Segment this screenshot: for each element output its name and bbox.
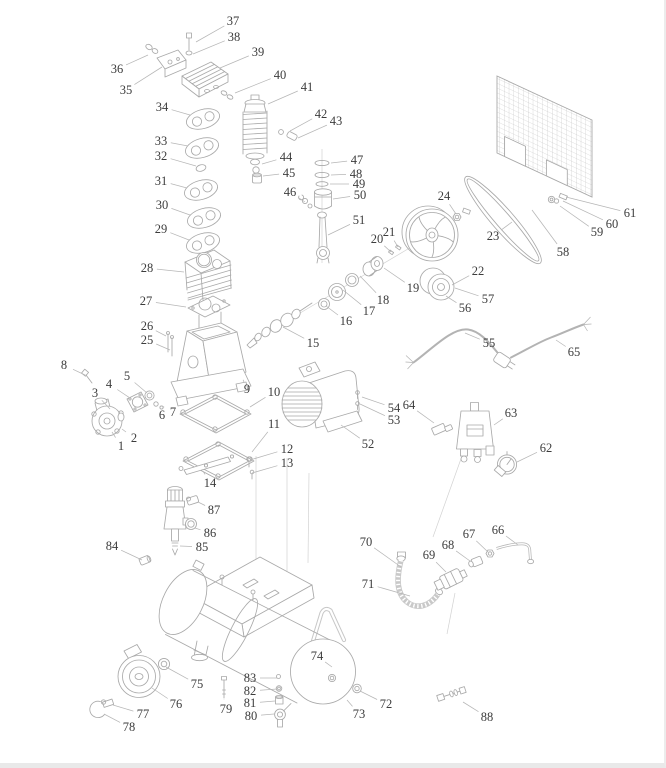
part-label-62: 62 xyxy=(540,441,553,455)
base-gaskets-group xyxy=(179,395,254,480)
part-leader-32 xyxy=(171,159,196,166)
power-plug xyxy=(493,351,517,372)
gasket-32 xyxy=(195,164,206,173)
bolt-79 xyxy=(222,677,227,699)
part-label-17: 17 xyxy=(363,304,376,318)
part-label-30: 30 xyxy=(156,198,169,212)
part-label-78: 78 xyxy=(123,720,136,734)
part-label-70: 70 xyxy=(360,535,373,549)
part-label-29: 29 xyxy=(155,222,168,236)
crankcase xyxy=(171,312,251,406)
part-label-23: 23 xyxy=(487,229,500,243)
part-label-16: 16 xyxy=(340,314,353,328)
part-leader-63 xyxy=(494,419,503,425)
part-leader-54 xyxy=(362,397,385,405)
part-leader-80 xyxy=(261,714,274,715)
part-leader-76 xyxy=(152,688,168,699)
part-leader-88 xyxy=(463,702,479,712)
regulator-group xyxy=(139,487,199,566)
gauge-62 xyxy=(494,452,516,477)
seal-18 xyxy=(346,274,359,287)
part-leader-84 xyxy=(121,550,142,560)
part-label-26: 26 xyxy=(141,319,154,333)
part-label-72: 72 xyxy=(380,697,393,711)
part-leader-71 xyxy=(378,587,410,596)
gasket-10 xyxy=(180,395,251,433)
part-label-34: 34 xyxy=(156,100,169,114)
plate-33 xyxy=(183,134,221,162)
part-leader-41 xyxy=(268,91,298,104)
part-leader-35 xyxy=(134,67,162,85)
part-leader-48 xyxy=(331,174,346,175)
bung-72-73 xyxy=(353,684,362,693)
drive-group xyxy=(402,170,549,300)
part-leader-77 xyxy=(113,705,133,711)
part-label-2: 2 xyxy=(131,431,137,445)
part-leader-18 xyxy=(360,276,376,293)
part-label-82: 82 xyxy=(244,684,257,698)
part-leader-57 xyxy=(455,288,479,296)
part-label-20: 20 xyxy=(371,232,384,246)
plug-84 xyxy=(139,555,152,565)
part-leader-40 xyxy=(235,79,271,93)
part-label-42: 42 xyxy=(315,107,328,121)
part-label-83: 83 xyxy=(244,671,257,685)
bolt-36 xyxy=(145,43,159,54)
part-label-86: 86 xyxy=(204,526,217,540)
part-label-74: 74 xyxy=(311,649,324,663)
part-label-28: 28 xyxy=(141,261,154,275)
part-label-56: 56 xyxy=(459,301,472,315)
part-label-52: 52 xyxy=(362,437,375,451)
part-label-44: 44 xyxy=(280,150,293,164)
part-leader-64 xyxy=(417,411,434,423)
drain-valve-80-81-82-83 xyxy=(275,675,291,728)
part-label-50: 50 xyxy=(354,188,367,202)
wheel-76 xyxy=(118,656,160,698)
part-label-65: 65 xyxy=(568,345,581,359)
keys-20-21 xyxy=(389,245,402,255)
part-label-87: 87 xyxy=(208,503,221,517)
part-label-68: 68 xyxy=(442,538,455,552)
part-label-15: 15 xyxy=(307,336,320,350)
part-label-71: 71 xyxy=(362,577,375,591)
plate-31 xyxy=(182,176,220,204)
part-leader-45 xyxy=(263,174,279,176)
part-label-79: 79 xyxy=(220,702,233,716)
part-leader-44 xyxy=(262,160,276,164)
part-leader-75 xyxy=(166,667,188,679)
part-label-1: 1 xyxy=(118,439,124,453)
part-label-73: 73 xyxy=(353,707,366,721)
exploded-parts-diagram: 1234567891011121314151617181920212223242… xyxy=(0,0,666,768)
part-label-9: 9 xyxy=(244,382,250,396)
part-label-32: 32 xyxy=(155,149,168,163)
part-leader-24 xyxy=(450,204,457,214)
part-leader-39 xyxy=(220,56,249,68)
pipe-66 xyxy=(497,544,534,564)
part-leader-87 xyxy=(198,502,205,506)
bolt-88 xyxy=(437,687,466,702)
pump-group xyxy=(82,369,164,436)
part-label-3: 3 xyxy=(92,386,98,400)
part-label-18: 18 xyxy=(377,293,390,307)
part-leader-56 xyxy=(446,296,457,303)
part-label-63: 63 xyxy=(505,406,518,420)
part-leader-30 xyxy=(171,208,190,215)
part-leader-85 xyxy=(180,546,192,547)
bolt-8 xyxy=(82,369,92,383)
part-leader-11 xyxy=(252,432,268,452)
part-leader-37 xyxy=(196,26,224,42)
part-label-38: 38 xyxy=(228,30,241,44)
fitting-68 xyxy=(468,556,483,568)
pressure-switch-63 xyxy=(457,403,495,463)
part-leader-62 xyxy=(517,452,537,462)
part-label-13: 13 xyxy=(281,456,294,470)
fitting-64 xyxy=(431,423,452,435)
part-leader-43 xyxy=(298,125,327,138)
unloader-valve-35 xyxy=(157,50,186,77)
part-label-69: 69 xyxy=(423,548,436,562)
part-label-43: 43 xyxy=(330,114,343,128)
part-leader-4 xyxy=(117,390,130,399)
part-leader-86 xyxy=(195,528,201,530)
part-leader-17 xyxy=(343,290,361,305)
fittings-40 xyxy=(220,90,233,100)
part-label-84: 84 xyxy=(106,539,119,553)
outlet-group xyxy=(397,544,534,606)
part-leader-51 xyxy=(328,224,350,235)
bearing-17 xyxy=(329,284,346,301)
part-label-81: 81 xyxy=(244,696,257,710)
part-label-80: 80 xyxy=(245,709,258,723)
check-valve-69 xyxy=(433,566,468,593)
part-label-11: 11 xyxy=(268,417,280,431)
part-label-46: 46 xyxy=(284,185,297,199)
fitting-87 xyxy=(186,495,199,505)
part-leader-33 xyxy=(171,143,188,146)
part-leader-2 xyxy=(122,429,126,432)
motor-pulley-22-56-57 xyxy=(420,268,454,300)
part-leader-61 xyxy=(566,197,620,211)
part-leader-53 xyxy=(360,404,385,416)
belt-guard-group xyxy=(497,76,592,203)
part-label-47: 47 xyxy=(351,153,364,167)
part-label-41: 41 xyxy=(301,80,314,94)
part-label-36: 36 xyxy=(111,62,124,76)
part-label-5: 5 xyxy=(124,369,130,383)
part-leader-78 xyxy=(104,714,120,722)
motor-52 xyxy=(282,362,362,432)
motor-group xyxy=(282,362,362,432)
part-label-77: 77 xyxy=(137,707,150,721)
part-label-66: 66 xyxy=(492,523,505,537)
part-label-59: 59 xyxy=(591,225,604,239)
part-leader-26 xyxy=(156,331,166,336)
part-label-25: 25 xyxy=(141,333,154,347)
part-leader-16 xyxy=(326,306,338,315)
part-label-45: 45 xyxy=(283,166,296,180)
part-label-35: 35 xyxy=(120,83,133,97)
tank-group xyxy=(90,557,466,727)
part-label-22: 22 xyxy=(472,264,485,278)
hose-70-71 xyxy=(397,552,444,606)
part-label-58: 58 xyxy=(557,245,570,259)
part-leader-68 xyxy=(456,551,470,561)
part-label-33: 33 xyxy=(155,134,168,148)
piston-crank-group xyxy=(247,160,401,348)
pump-body-1-2-3 xyxy=(92,398,124,436)
belt-23 xyxy=(457,170,548,270)
part-leader-19 xyxy=(384,268,405,282)
part-label-8: 8 xyxy=(61,358,67,372)
cylinder-block-28 xyxy=(185,250,232,300)
part-label-10: 10 xyxy=(268,385,281,399)
part-leader-22 xyxy=(452,276,469,285)
belt-guard-mesh-58 xyxy=(497,76,592,197)
part-leader-47 xyxy=(331,161,347,163)
part-leader-31 xyxy=(171,184,187,188)
part-leader-15 xyxy=(283,327,304,338)
part-leader-59 xyxy=(560,206,589,226)
head-gasket-27 xyxy=(188,296,230,317)
part-leader-20 xyxy=(384,246,391,252)
part-label-37: 37 xyxy=(227,14,240,28)
part-leader-58 xyxy=(532,210,557,244)
part-label-53: 53 xyxy=(388,413,401,427)
connecting-rod-51 xyxy=(317,212,330,263)
part-label-75: 75 xyxy=(191,677,204,691)
part-leader-69 xyxy=(436,562,446,572)
part-leader-36 xyxy=(126,55,148,65)
part-leader-23 xyxy=(501,222,512,230)
part-label-67: 67 xyxy=(463,527,476,541)
piston-50 xyxy=(315,189,332,209)
flywheel xyxy=(402,206,458,261)
part-label-19: 19 xyxy=(407,281,420,295)
part-label-12: 12 xyxy=(281,442,294,456)
part-label-6: 6 xyxy=(159,408,165,422)
washer-bolt-24 xyxy=(453,208,470,220)
cylinder-crankcase-group xyxy=(167,250,252,406)
part-label-60: 60 xyxy=(606,217,619,231)
part-leader-38 xyxy=(193,41,225,54)
part-leader-81 xyxy=(260,701,275,702)
valve-plates-group xyxy=(182,105,223,257)
part-leader-65 xyxy=(556,340,566,347)
part-label-21: 21 xyxy=(383,225,396,239)
part-label-40: 40 xyxy=(274,68,287,82)
part-leader-5 xyxy=(135,383,147,394)
part-leader-28 xyxy=(157,269,184,272)
part-label-4: 4 xyxy=(106,377,113,391)
part-leader-29 xyxy=(170,233,189,240)
part-label-64: 64 xyxy=(403,398,416,412)
part-label-14: 14 xyxy=(204,476,217,490)
part-leader-82 xyxy=(260,689,277,690)
part-label-88: 88 xyxy=(481,710,494,724)
part-label-27: 27 xyxy=(140,294,153,308)
plate-34 xyxy=(184,105,222,133)
plate-14 xyxy=(179,455,234,475)
part-leader-34 xyxy=(172,110,190,115)
part-leader-72 xyxy=(360,691,377,700)
air-filter-41 xyxy=(243,95,267,159)
part-label-54: 54 xyxy=(388,401,401,415)
tank-handle xyxy=(313,609,344,641)
part-leader-50 xyxy=(333,197,350,200)
part-leader-60 xyxy=(563,201,603,220)
crankshaft-15 xyxy=(247,303,312,348)
part-leader-73 xyxy=(347,700,353,706)
part-label-39: 39 xyxy=(252,45,265,59)
part-label-51: 51 xyxy=(353,213,366,227)
fitting-42-43 xyxy=(279,130,298,141)
fittings-44-45 xyxy=(251,159,262,183)
part-label-85: 85 xyxy=(196,540,209,554)
hub-19 xyxy=(363,257,383,277)
part-leader-27 xyxy=(156,303,186,308)
tank-leg xyxy=(192,641,209,661)
plate-30 xyxy=(185,204,223,232)
part-leader-67 xyxy=(476,541,488,552)
part-label-76: 76 xyxy=(170,697,183,711)
bolt-37-38 xyxy=(186,33,192,55)
part-leader-12 xyxy=(250,452,277,460)
diagram-svg: 1234567891011121314151617181920212223242… xyxy=(0,0,666,768)
part-leader-10 xyxy=(250,397,266,407)
part-label-24: 24 xyxy=(438,189,451,203)
part-label-61: 61 xyxy=(624,206,637,220)
part-label-57: 57 xyxy=(482,292,495,306)
part-leader-52 xyxy=(341,425,360,438)
wiring-group xyxy=(406,317,592,372)
part-label-55: 55 xyxy=(483,336,496,350)
bolts-25-26 xyxy=(167,332,174,357)
part-label-7: 7 xyxy=(170,405,176,419)
axle-pin-77 xyxy=(101,699,113,707)
part-label-31: 31 xyxy=(155,174,168,188)
piston-pin-46 xyxy=(299,195,312,208)
part-leader-42 xyxy=(290,119,312,131)
